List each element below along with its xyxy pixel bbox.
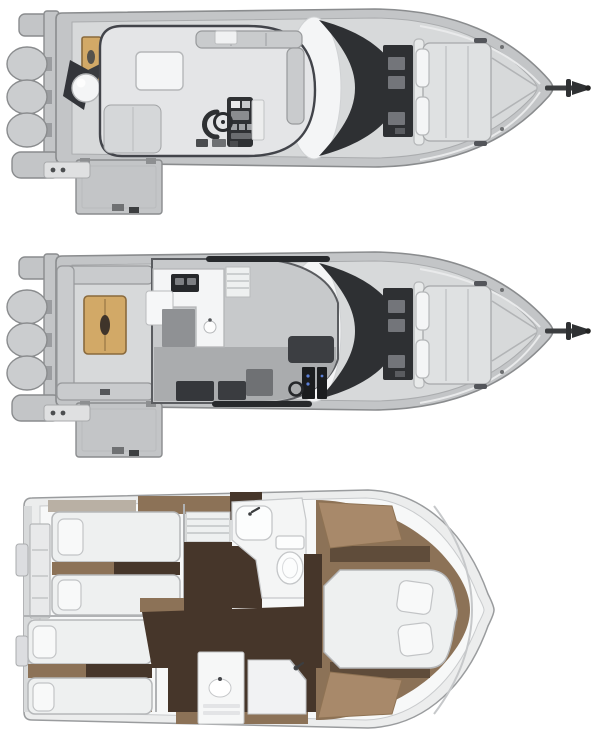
headboard-shadow (330, 546, 430, 562)
roof-grabrail (206, 256, 330, 262)
bench-detail (100, 389, 110, 395)
stern-tab (16, 544, 28, 576)
flybridge-deck-plan (7, 9, 591, 214)
wheel-hub (221, 120, 225, 124)
faucet-dot (248, 512, 252, 516)
console-light (306, 374, 309, 377)
stern-tab (16, 636, 28, 666)
floor-strip-dark (114, 562, 180, 575)
cockpit-bench (57, 266, 74, 398)
console-switch (247, 124, 252, 130)
toilet-bowl (277, 552, 303, 584)
floor-strip-dark (86, 664, 152, 678)
cabinet-wedge (318, 672, 402, 718)
cockpit-table (84, 296, 126, 354)
hallway-floor (184, 542, 232, 618)
pillow (33, 683, 54, 711)
vanity-drawer (203, 711, 240, 715)
flybridge-table (136, 52, 183, 90)
pillow (58, 580, 81, 610)
guest-cabin-aft (28, 618, 156, 714)
console-switch (239, 124, 245, 130)
main-deck-plan (7, 252, 591, 457)
bedside-floor (304, 554, 322, 668)
lower-deck-plan (16, 490, 494, 728)
floor-strip (28, 664, 86, 678)
helm-bench (288, 336, 334, 363)
faucet (208, 318, 212, 322)
console-light (306, 382, 309, 385)
island-bed (324, 570, 457, 668)
wardrobe-trim (48, 500, 136, 512)
dinette-seat (246, 369, 273, 396)
console-light (321, 375, 324, 378)
deck-vent (212, 139, 226, 147)
console-screen (231, 101, 240, 108)
burner (175, 278, 184, 285)
salon-sofa (218, 381, 246, 400)
pillow (58, 519, 83, 555)
bathroom-aft (198, 652, 306, 724)
galley-sink (204, 321, 216, 333)
cabinet-wedge (318, 502, 402, 548)
step-tread-box (226, 267, 250, 297)
pillow (33, 626, 56, 658)
helm-seat (252, 100, 264, 140)
helm-console (317, 367, 327, 399)
console-panel (231, 111, 249, 120)
closet-shelves (30, 524, 50, 618)
console-tray (231, 133, 251, 139)
table-inlay (100, 315, 110, 335)
roof-grabrail (212, 401, 312, 407)
aft-facing-bench (196, 31, 302, 48)
salon-sofa (176, 381, 214, 401)
console-screen (242, 101, 250, 108)
deck-hatch (215, 31, 237, 44)
vanity-sink (209, 679, 231, 697)
burner (187, 278, 196, 285)
vanity-drawer (203, 704, 240, 708)
deck-plans-canvas: Motor yacht deck plans - top view of thr… (0, 0, 610, 733)
deck-vent (230, 141, 238, 147)
staircase (186, 512, 230, 542)
toilet-tank (276, 536, 304, 549)
pillow (396, 580, 434, 615)
floor-accent (140, 598, 184, 612)
side-bench (287, 48, 304, 124)
sunpad (104, 105, 161, 153)
pillow (397, 622, 434, 657)
galley-cabinet (162, 309, 195, 347)
wet-bar-sink (87, 50, 95, 64)
companionway-steps (226, 267, 250, 297)
yacht-deck-plans: Motor yacht deck plans - top view of thr… (0, 0, 610, 733)
table-highlight (77, 79, 86, 88)
faucet-dot (218, 677, 222, 681)
aft-round-table (72, 74, 100, 102)
floor-strip (52, 562, 114, 575)
deck-vent (196, 139, 208, 147)
